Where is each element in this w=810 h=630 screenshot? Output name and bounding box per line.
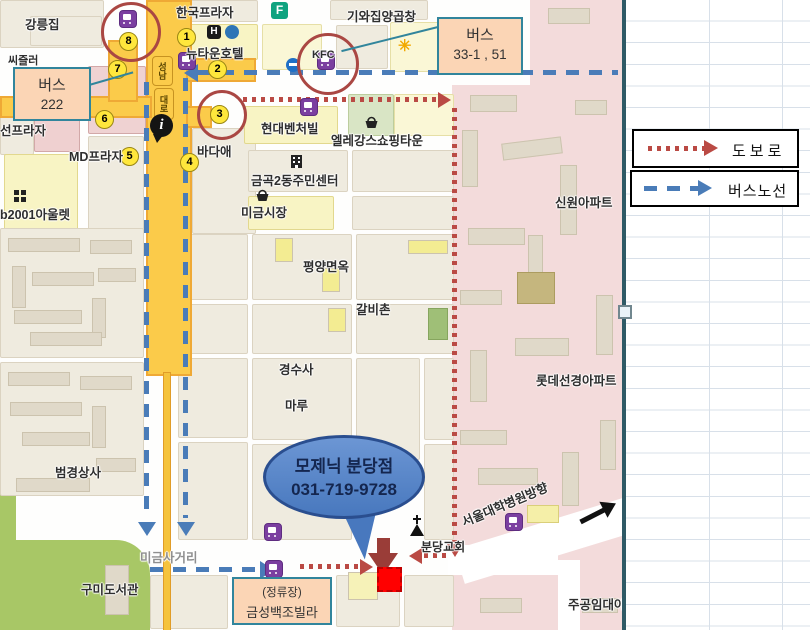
callout-value: 222: [15, 97, 89, 112]
place-label: 기와집양곱창: [347, 6, 416, 25]
map-image[interactable]: 성남 대로 H F ✳ i: [0, 0, 622, 630]
legend-bus-sample: [644, 186, 700, 191]
walk-route-bottom: [300, 564, 360, 569]
grid-column-line: [709, 0, 710, 630]
building-block: [352, 196, 454, 230]
building: [600, 420, 616, 470]
legend-walk-arrowhead: [704, 140, 718, 156]
building: [548, 8, 590, 24]
store-name: 모제닉 분당점: [266, 452, 422, 477]
callout-title: 버스: [439, 24, 521, 45]
building: [8, 238, 80, 252]
building: [460, 430, 507, 445]
bus-route-top: [198, 70, 618, 75]
building: [14, 310, 82, 324]
shopping-icon: [14, 190, 19, 195]
building-block: [424, 358, 454, 440]
building: [12, 266, 26, 308]
office-building-icon: [290, 155, 303, 168]
place-label: MD프라자: [69, 146, 123, 165]
road-name-pill: 성남: [152, 56, 173, 86]
place-label: 미금사거리: [140, 547, 198, 566]
place-label: 마루: [285, 395, 308, 414]
place-label: 주공임대아: [568, 594, 622, 613]
destination-marker: [377, 567, 402, 592]
convenience-store-icon: F: [271, 2, 288, 19]
building: [596, 295, 613, 355]
callout-bus-33-51: 버스 33-1 , 51: [437, 17, 523, 75]
legend-walk-label: 도보로: [732, 140, 785, 161]
building-block: [352, 150, 454, 192]
market-icon: [364, 116, 379, 129]
building: [90, 240, 132, 254]
store-phone: 031-719-9728: [266, 480, 422, 500]
bus-route-arrow-down2: [177, 522, 195, 536]
legend-bus-arrowhead: [698, 180, 712, 196]
building: [480, 598, 522, 613]
callout-line1: (정류장): [234, 584, 330, 600]
building: [98, 268, 136, 282]
walk-route-top: [243, 97, 443, 102]
speech-bubble: 모제닉 분당점 031-719-9728: [263, 435, 425, 519]
place-label: 평양면옥: [303, 256, 349, 275]
building: [470, 95, 517, 112]
building: [30, 332, 102, 346]
place-label: 경수사: [279, 359, 314, 378]
bus-route-vertical-left: [144, 82, 149, 518]
building: [515, 338, 569, 356]
building: [32, 272, 94, 286]
legend-walk-sample: [648, 146, 706, 151]
place-label: 미금시장: [241, 202, 287, 221]
landmark-icon: [225, 25, 239, 39]
stop-number-6: 6: [95, 110, 114, 129]
grid-column-line: [782, 0, 783, 630]
building: [462, 130, 478, 187]
building: [562, 452, 579, 506]
callout-line2: 금성백조빌라: [234, 602, 330, 621]
legend-bus: 버스노선: [630, 170, 799, 207]
building-block: [424, 444, 454, 540]
highlight-ring-stop3: [197, 90, 247, 140]
place-label: 씨즐러: [8, 52, 38, 68]
info-pin-icon: i: [150, 114, 174, 144]
bus-stop-icon: [265, 560, 283, 578]
building: [8, 372, 70, 386]
callout-bus-stop: (정류장) 금성백조빌라: [232, 577, 332, 625]
building: [470, 350, 487, 402]
building: [527, 505, 559, 523]
place-label: 롯데선경아파트: [536, 370, 617, 389]
place-label: 구미도서관: [81, 579, 139, 598]
building: [275, 238, 293, 262]
place-label: 갈비촌: [356, 299, 391, 318]
place-label: 뉴타운호텔: [186, 43, 244, 62]
callout-value: 33-1 , 51: [439, 47, 521, 62]
karaoke-icon: ✳: [398, 36, 411, 56]
main-road-vertical-thin: [163, 372, 171, 630]
bus-route-bottom: [150, 567, 262, 572]
walk-route-arrow-right: [438, 92, 451, 108]
legend-walk: 도보로: [632, 129, 799, 168]
stop-number-2: 2: [208, 60, 227, 79]
place-label: 엘레강스쇼핑타운: [331, 130, 423, 149]
building-block: [404, 575, 454, 627]
place-label: b2001아울렛: [0, 204, 70, 223]
building: [92, 406, 106, 448]
building: [328, 308, 346, 332]
building: [96, 458, 136, 472]
callout-bus-222: 버스 222: [13, 67, 91, 121]
building-khaki: [517, 272, 555, 304]
building-block: [150, 575, 228, 629]
building: [575, 100, 607, 115]
walk-route-vertical: [452, 108, 457, 542]
building: [428, 308, 448, 340]
place-label: 현대벤처빌: [261, 118, 319, 137]
building: [348, 572, 378, 600]
spreadsheet-with-map: 성남 대로 H F ✳ i: [0, 0, 810, 630]
bus-route-arrow-down1: [138, 522, 156, 536]
place-label: 선프라자: [0, 120, 46, 139]
church-icon: [408, 515, 426, 539]
building: [80, 376, 132, 390]
callout-title: 버스: [15, 74, 89, 95]
building: [10, 402, 82, 416]
legend-bus-label: 버스노선: [728, 180, 787, 201]
building: [408, 240, 448, 254]
bus-route-vertical-right: [183, 78, 188, 518]
building: [22, 432, 90, 446]
hotel-icon: H: [207, 25, 221, 39]
image-resize-handle[interactable]: [618, 305, 632, 319]
building: [468, 228, 525, 245]
place-label: 금곡2동주민센터: [251, 170, 338, 189]
place-label: 바다애: [197, 141, 232, 160]
place-label: 한국프라자: [176, 2, 234, 21]
place-label: 신원아파트: [555, 192, 613, 211]
bus-stop-icon: [264, 523, 282, 541]
highlight-ring-stop8: [101, 2, 161, 62]
place-label: 분당교회: [421, 538, 465, 555]
place-label: 강릉집: [25, 14, 60, 33]
place-label: KFC: [312, 49, 335, 61]
bus-stop-icon: [300, 98, 318, 116]
place-label: 범경상사: [55, 462, 101, 481]
market-icon: [255, 189, 270, 202]
highlight-ring-kfc: [297, 33, 359, 95]
building: [460, 290, 502, 305]
bus-stop-icon: [505, 513, 523, 531]
